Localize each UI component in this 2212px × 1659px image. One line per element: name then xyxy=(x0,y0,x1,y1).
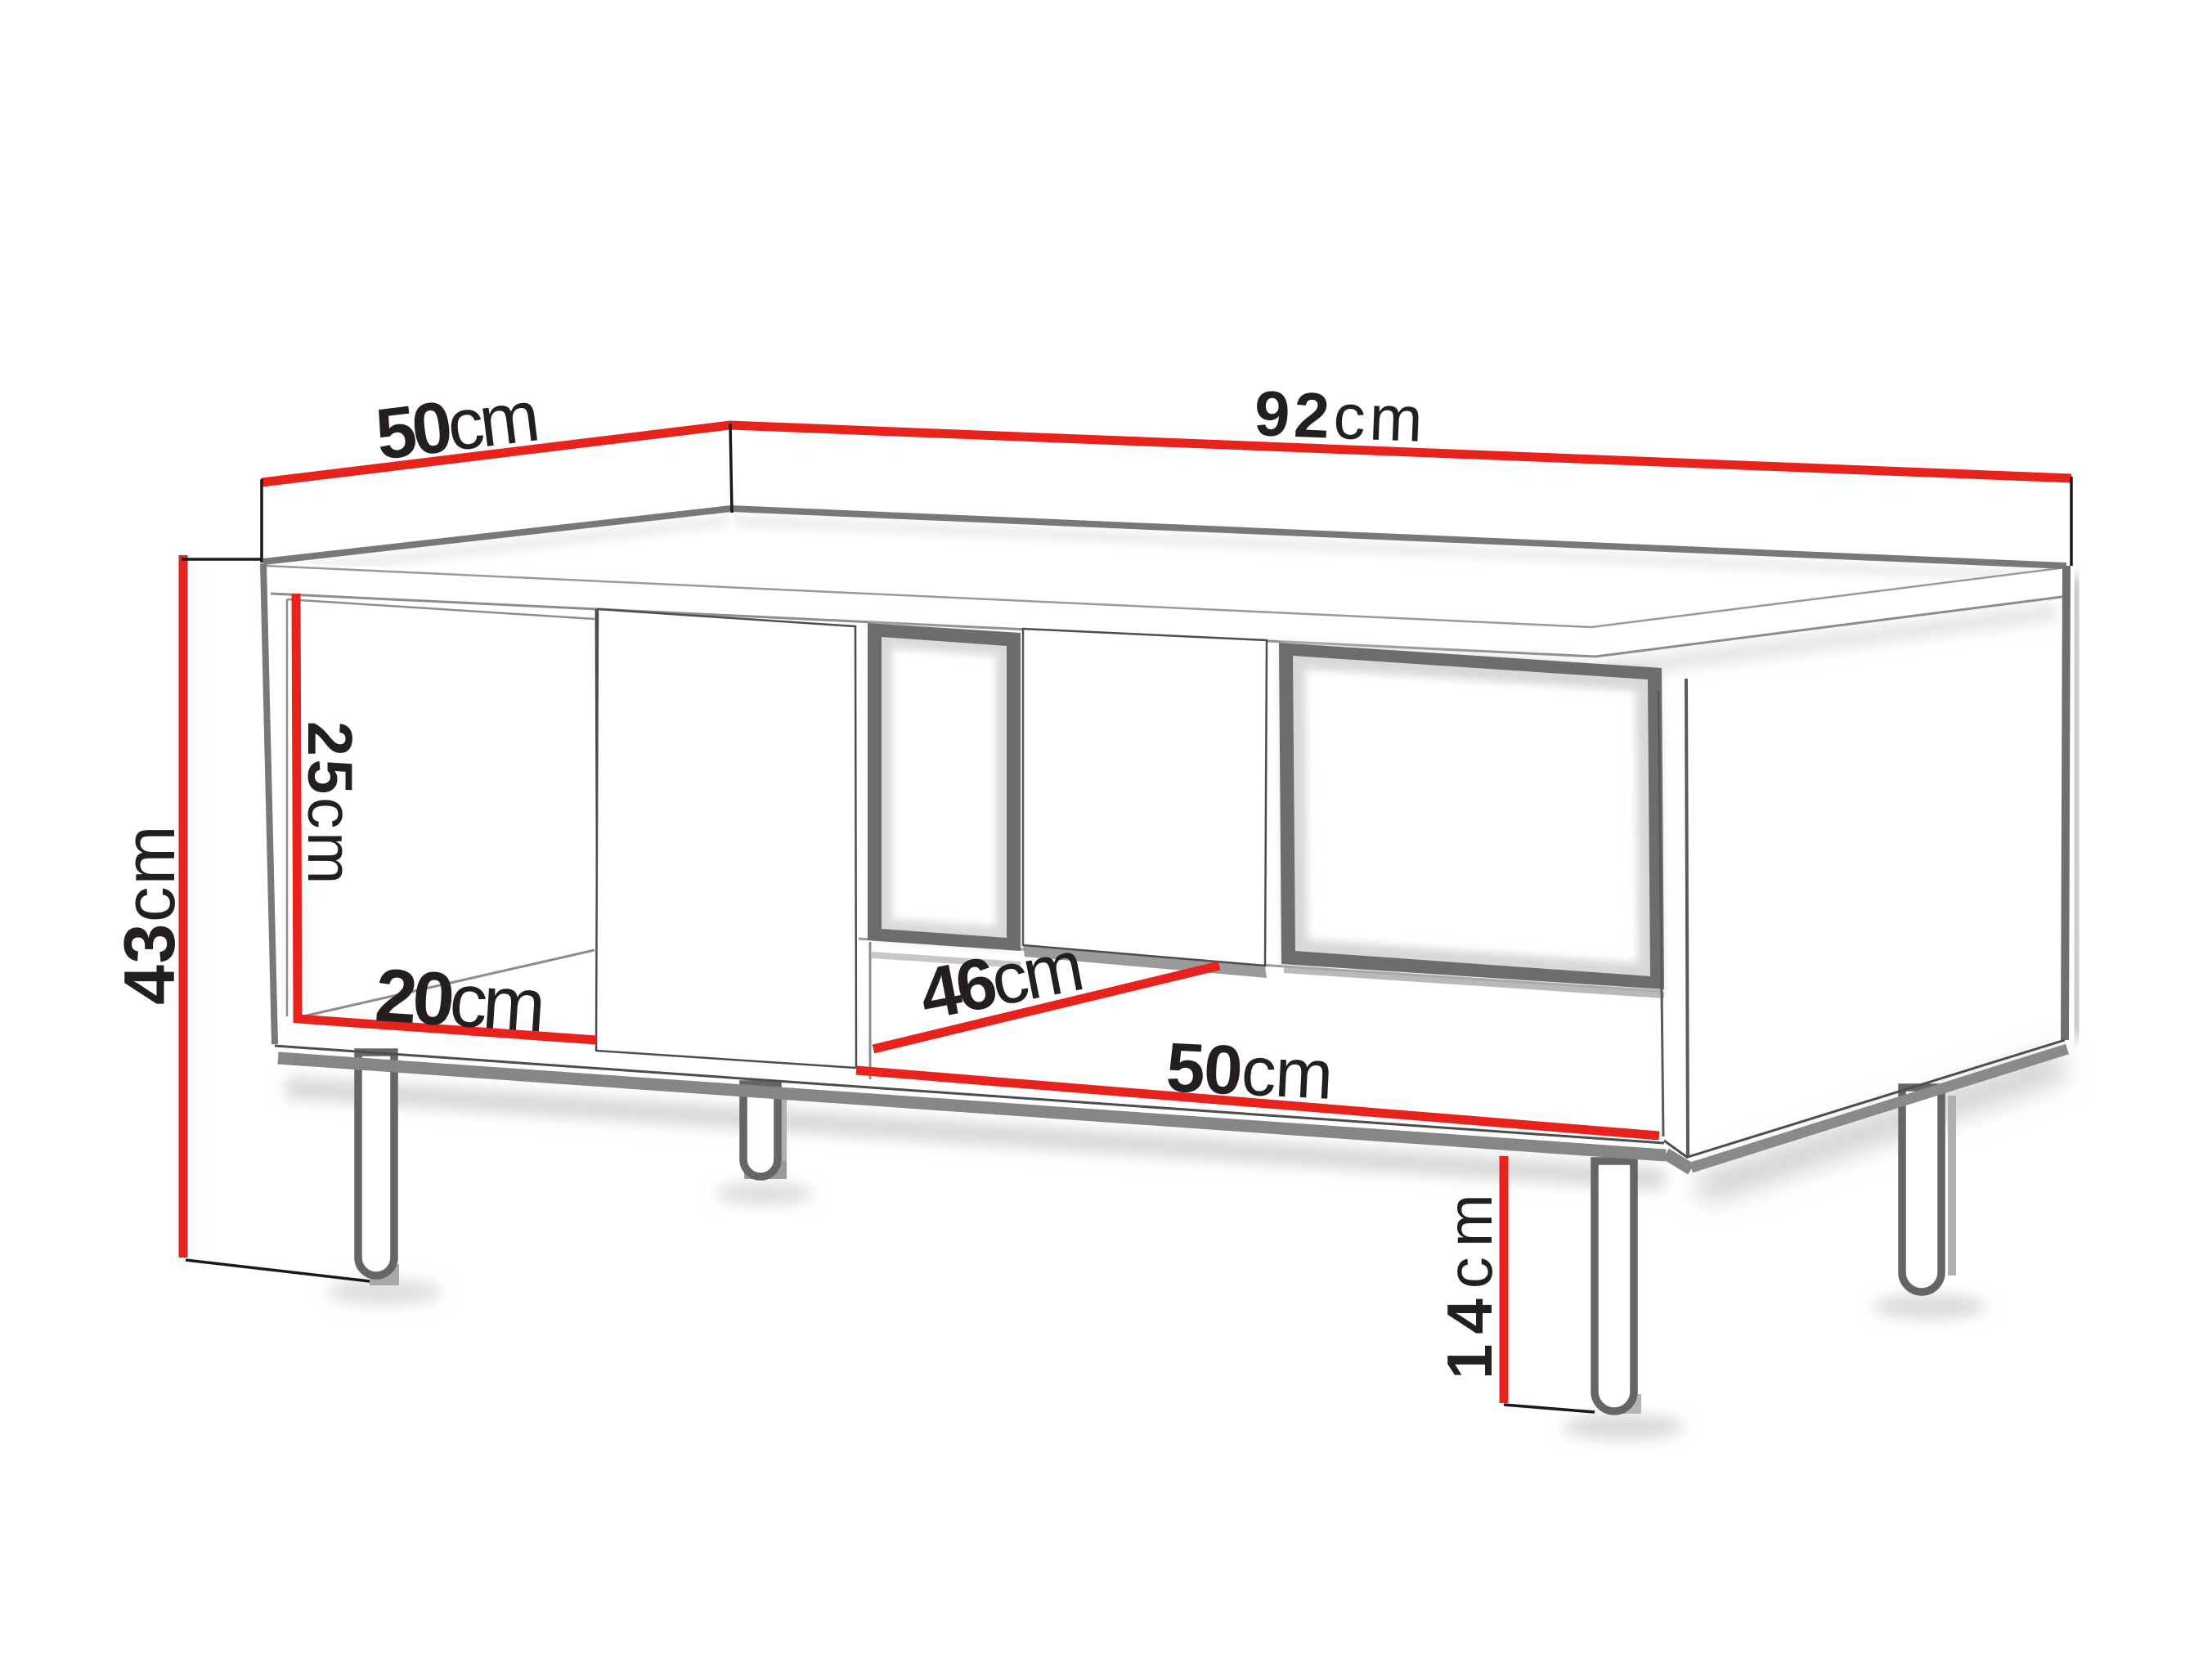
svg-text:92cm: 92cm xyxy=(1253,377,1428,455)
svg-text:14cm: 14cm xyxy=(1434,1184,1505,1379)
svg-text:43cm: 43cm xyxy=(109,824,190,1005)
svg-text:50cm: 50cm xyxy=(1164,1029,1334,1114)
svg-text:25cm: 25cm xyxy=(294,721,365,887)
svg-text:20cm: 20cm xyxy=(373,953,544,1047)
